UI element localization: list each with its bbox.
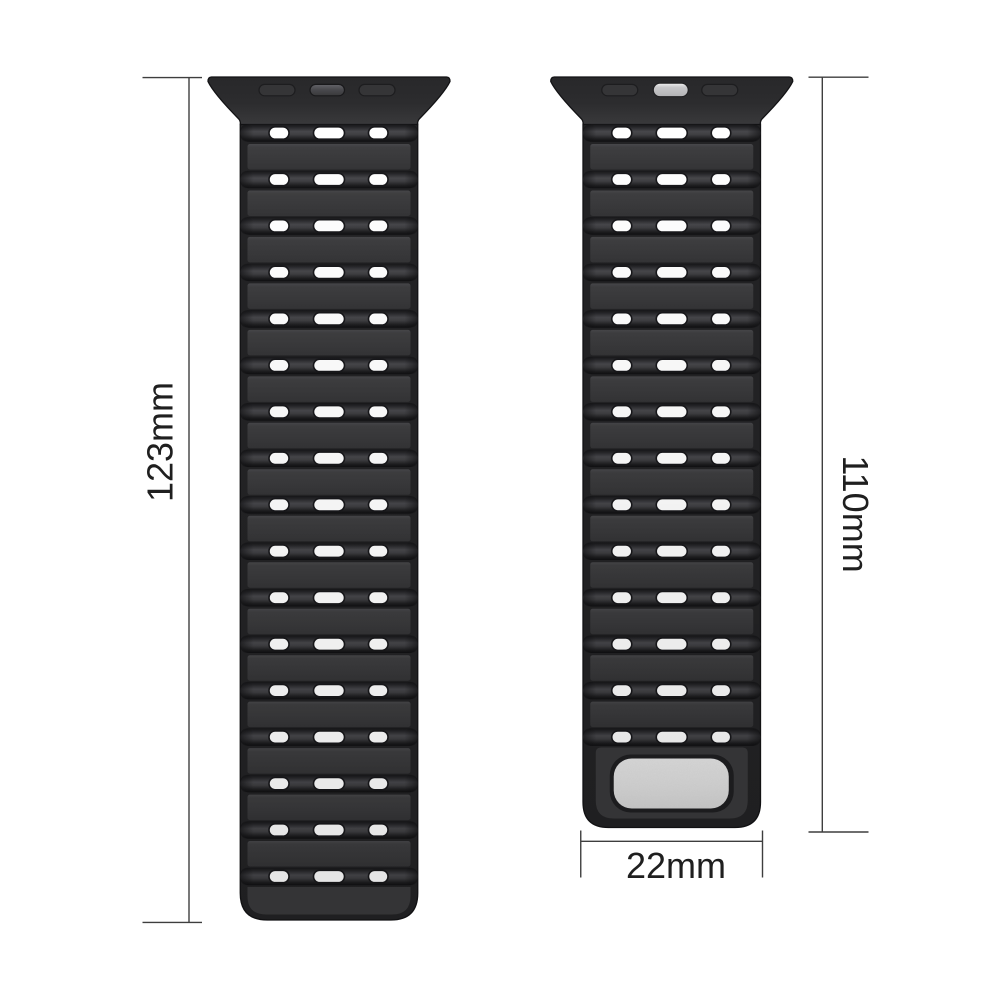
svg-text:123mm: 123mm [140, 382, 181, 502]
svg-text:22mm: 22mm [626, 845, 726, 886]
svg-text:110mm: 110mm [835, 455, 876, 572]
